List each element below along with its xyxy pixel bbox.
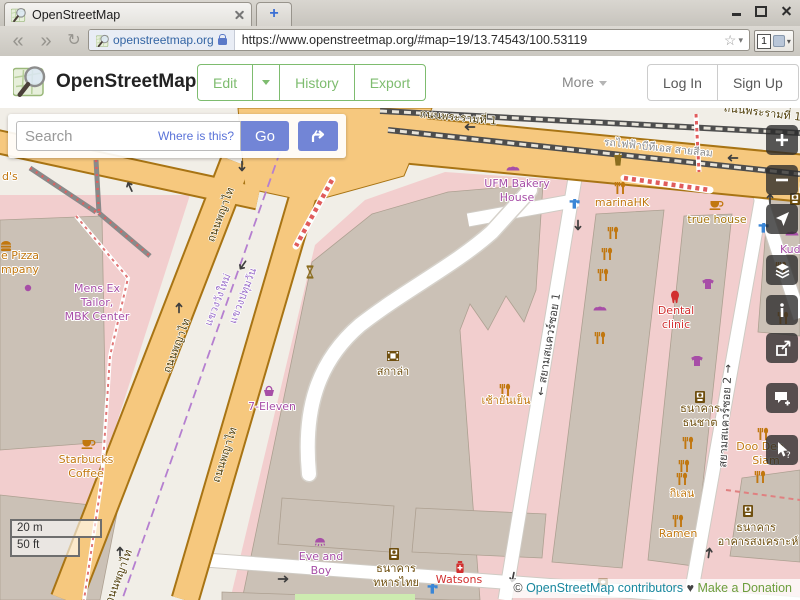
back-icon[interactable]: « [6, 27, 30, 55]
more-menu[interactable]: More [562, 56, 607, 108]
building-bottom-1 [278, 498, 394, 552]
log-in-button[interactable]: Log In [648, 65, 717, 100]
poi-label: ธนาคาร [736, 521, 776, 534]
window-controls [732, 5, 792, 17]
minimize-icon[interactable] [732, 13, 741, 16]
where-is-this-link[interactable]: Where is this? [158, 129, 234, 143]
url-dropdown-icon[interactable]: ▾ [738, 35, 749, 46]
add-note-button[interactable] [766, 383, 798, 413]
share-icon [774, 340, 791, 357]
atm-icon [389, 548, 399, 560]
shop-dot-icon [25, 285, 31, 291]
go-button[interactable]: Go [241, 121, 289, 151]
maximize-icon[interactable] [755, 6, 767, 17]
close-tab-icon[interactable] [234, 9, 245, 20]
site-host: openstreetmap.org [113, 33, 214, 47]
poi-label: อาคารสงเคราะห์ [718, 535, 799, 548]
attribution-bar: © OpenStreetMap contributors ♥ Make a Do… [507, 579, 800, 598]
navigation-bar: « » ↻ openstreetmap.org https://www.open… [0, 26, 800, 57]
auth-group: Log In Sign Up [647, 64, 799, 101]
poi-label: true house [687, 213, 746, 226]
export-button[interactable]: Export [354, 65, 425, 100]
poi-label: 7-Eleven [248, 400, 296, 413]
poi-label: mpany [1, 263, 39, 276]
search-panel: Where is this? Go [8, 114, 346, 158]
tab-openstreetmap[interactable]: OpenStreetMap [4, 2, 252, 26]
forward-icon[interactable]: » [34, 27, 58, 55]
poi-label: เช้ายันเย็น [481, 393, 531, 407]
map-action-group: Edit History Export [197, 64, 426, 101]
poi-label: UFM Bakery [484, 177, 550, 190]
poi-label: e Pizza [1, 249, 39, 262]
scale-imperial: 50 ft [10, 538, 80, 557]
tab-list-button[interactable]: 1 ▾ [754, 30, 794, 52]
locate-arrow-icon [774, 211, 790, 227]
poi-label: กิเลน [669, 487, 695, 500]
page-thumb-icon [773, 35, 785, 47]
note-icon [773, 389, 791, 407]
new-tab-button[interactable]: + [256, 2, 292, 27]
poi-label: clinic [662, 318, 690, 331]
directions-button[interactable] [298, 121, 338, 151]
poi-label: Eve and [299, 550, 343, 563]
atm-icon [743, 505, 753, 517]
copyright-symbol: © [513, 581, 522, 595]
poi-label: MBK Center [65, 310, 130, 323]
poi-label: Ramen [659, 527, 698, 540]
layers-button[interactable] [766, 255, 798, 285]
tab-list-caret-icon: ▾ [787, 37, 791, 46]
poi-label: ธนชาต [682, 416, 717, 429]
history-button[interactable]: History [279, 65, 354, 100]
donate-link[interactable]: Make a Donation [697, 581, 792, 595]
url-text[interactable]: https://www.openstreetmap.org/#map=19/13… [235, 33, 718, 47]
directions-icon [308, 126, 328, 146]
scale-metric: 20 m [10, 519, 102, 538]
osm-contributors-link[interactable]: OpenStreetMap contributors [526, 581, 683, 595]
edit-button[interactable]: Edit [198, 65, 252, 100]
grass-patch [295, 594, 415, 600]
browser-window: OpenStreetMap + « » ↻ openstreetmap.org … [0, 0, 800, 600]
plus-icon [774, 132, 790, 148]
poi-label: Tailor, [80, 296, 114, 309]
query-cursor-icon: ? [773, 441, 791, 459]
poi-label: Boy [311, 564, 332, 577]
tab-bar: OpenStreetMap + [0, 0, 800, 27]
poi-label: Watsons [436, 573, 483, 586]
url-bar[interactable]: openstreetmap.org https://www.openstreet… [88, 29, 750, 51]
map-container: ถนนพระรามที่ 1 ถนนพระรามที่ 1 รถไฟฟ้าบีท… [0, 108, 800, 600]
osm-logo [13, 64, 49, 100]
more-caret-icon [599, 81, 607, 86]
edit-dropdown-icon[interactable] [252, 65, 279, 100]
scale-bar: 20 m 50 ft [10, 519, 102, 557]
site-brand[interactable]: OpenStreetMap [56, 56, 196, 108]
osm-header: OpenStreetMap Edit History Export More L… [0, 56, 800, 109]
info-icon [774, 302, 790, 318]
poi-label: marinaHK [595, 196, 650, 209]
zoom-out-button[interactable] [766, 165, 798, 195]
heart-icon: ♥ [687, 581, 694, 595]
poi-label: d's [2, 170, 18, 183]
poi-label: Starbucks [59, 453, 114, 466]
svg-text:?: ? [786, 451, 791, 459]
osm-favicon [11, 7, 26, 22]
query-features-button[interactable]: ? [766, 435, 798, 465]
poi-label: Coffee [68, 467, 104, 480]
layers-icon [774, 262, 791, 279]
share-button[interactable] [766, 333, 798, 363]
site-identity-chip[interactable]: openstreetmap.org [89, 30, 235, 50]
poi-label: Dental [658, 304, 694, 317]
lock-icon [218, 38, 227, 45]
map-key-button[interactable] [766, 295, 798, 325]
poi-label: Mens Ex [74, 282, 120, 295]
sign-up-button[interactable]: Sign Up [717, 65, 798, 100]
poi-label: ทหารไทย [373, 576, 419, 589]
poi-label: ธนาคาร [680, 402, 720, 415]
reload-icon[interactable]: ↻ [62, 27, 86, 55]
map-canvas[interactable]: ถนนพระรามที่ 1 ถนนพระรามที่ 1 รถไฟฟ้าบีท… [0, 108, 800, 600]
close-window-icon[interactable] [781, 6, 792, 17]
poi-label: House [500, 191, 535, 204]
tab-count: 1 [757, 34, 771, 49]
bookmark-star-icon[interactable]: ☆ [718, 32, 739, 49]
poi-label: สกาล่า [377, 365, 409, 378]
search-box: Where is this? [16, 121, 241, 151]
tab-title: OpenStreetMap [32, 8, 234, 22]
site-favicon [96, 34, 109, 47]
zoom-in-button[interactable] [766, 125, 798, 155]
poi-label: ธนาคาร [376, 562, 416, 575]
cinema-icon [387, 351, 399, 361]
minus-icon [774, 172, 790, 188]
locate-button[interactable] [766, 204, 798, 234]
